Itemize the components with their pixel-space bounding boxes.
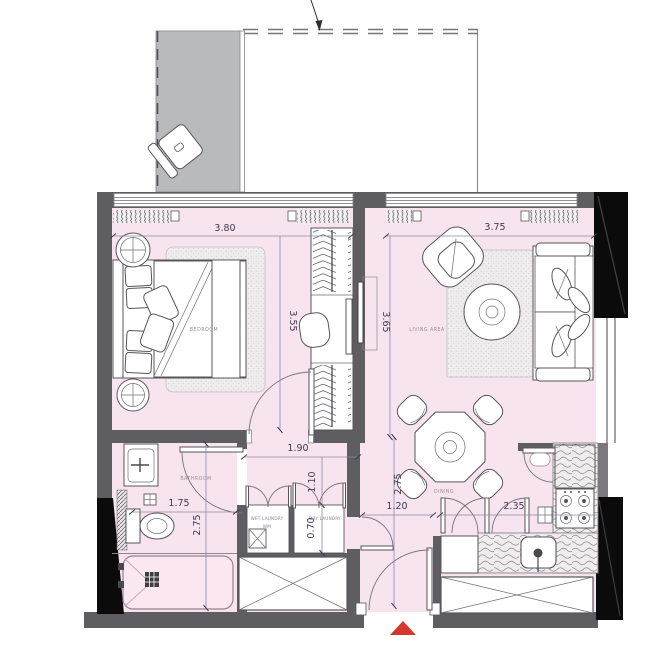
windows (114, 194, 577, 207)
kitchen-cabinet (441, 536, 478, 573)
curtain-hook-icon (288, 211, 296, 221)
dim-kitchen-width: 2.35 (503, 501, 524, 512)
bottom-wall-right (433, 612, 598, 628)
hall-vestibule-wall-upper (347, 443, 360, 517)
floorplan-canvas: BEDROOM (0, 0, 645, 658)
curtain-hook-icon (521, 211, 529, 221)
dim-laundry-depth: 0.70 (306, 517, 317, 538)
dim-living-width: 3.75 (484, 222, 505, 233)
curtain-hook-icon (413, 211, 421, 221)
curtain-hook-icon (171, 211, 179, 221)
dim-bathroom-depth: 2.75 (192, 514, 203, 535)
bathroom-shelf (144, 494, 156, 505)
wet-laundry-label: WET LAUNDRY (251, 516, 284, 521)
dim-hall-width: 1.90 (287, 443, 308, 454)
nightstand-bottom (117, 379, 149, 411)
living-label: LIVING AREA (409, 327, 445, 333)
dry-laundry-closet (294, 505, 344, 553)
wardrobe-end-wall (311, 430, 365, 443)
bottom-wall-left (84, 612, 364, 628)
shower-valve-icon (118, 563, 124, 570)
bedroom-window (114, 194, 353, 207)
bedroom-bathroom-wall (97, 430, 247, 443)
stove (556, 489, 594, 528)
bedroom-curtain-left (113, 210, 170, 223)
bedroom-label: BEDROOM (190, 327, 218, 333)
dim-entry-width: 1.20 (386, 501, 407, 512)
dining-table (415, 412, 485, 482)
left-wall (97, 192, 112, 498)
vestibule-kitchen-wall (433, 536, 441, 612)
hall-vestibule-wall-lower (347, 549, 360, 612)
kitchen-sink (521, 537, 556, 572)
shower-drain-icon (145, 572, 159, 587)
bed (113, 260, 246, 378)
bedroom-curtain-right (297, 210, 350, 223)
wet-laundry-sub-label: WM (263, 524, 271, 529)
shower (118, 556, 233, 609)
living-window (386, 194, 577, 207)
coffee-table (464, 284, 520, 340)
dim-living-depth: 3.65 (380, 311, 391, 332)
nightstand-top (116, 233, 150, 267)
bathroom-label: BATHROOM (180, 476, 211, 482)
dim-bathroom-width: 1.75 (168, 498, 189, 509)
living-curtain-right (530, 210, 578, 223)
terrace-floor (243, 30, 478, 192)
dim-bedroom-width: 3.80 (214, 223, 235, 234)
dressing-mirror (346, 299, 352, 354)
washing-machine-icon (249, 529, 266, 548)
entry-jamb-left (356, 603, 366, 615)
dim-dining-depth: 2.75 (393, 473, 404, 494)
balcony-divider-wall (240, 31, 245, 192)
dim-break-symbol (538, 507, 552, 523)
floorplan-drawing: BEDROOM (0, 0, 645, 658)
dim-bedroom-depth: 3.55 (287, 310, 298, 331)
sofa (533, 243, 594, 381)
dim-hall-depth: 1.10 (307, 471, 318, 492)
shower-valve-icon (118, 581, 124, 588)
laundry-divider-wall (289, 505, 294, 555)
bathroom-sink (124, 444, 158, 486)
dining-label: DINING (434, 489, 454, 495)
balcony (147, 31, 245, 192)
living-curtain-left (386, 210, 412, 223)
terrace (243, 30, 478, 193)
